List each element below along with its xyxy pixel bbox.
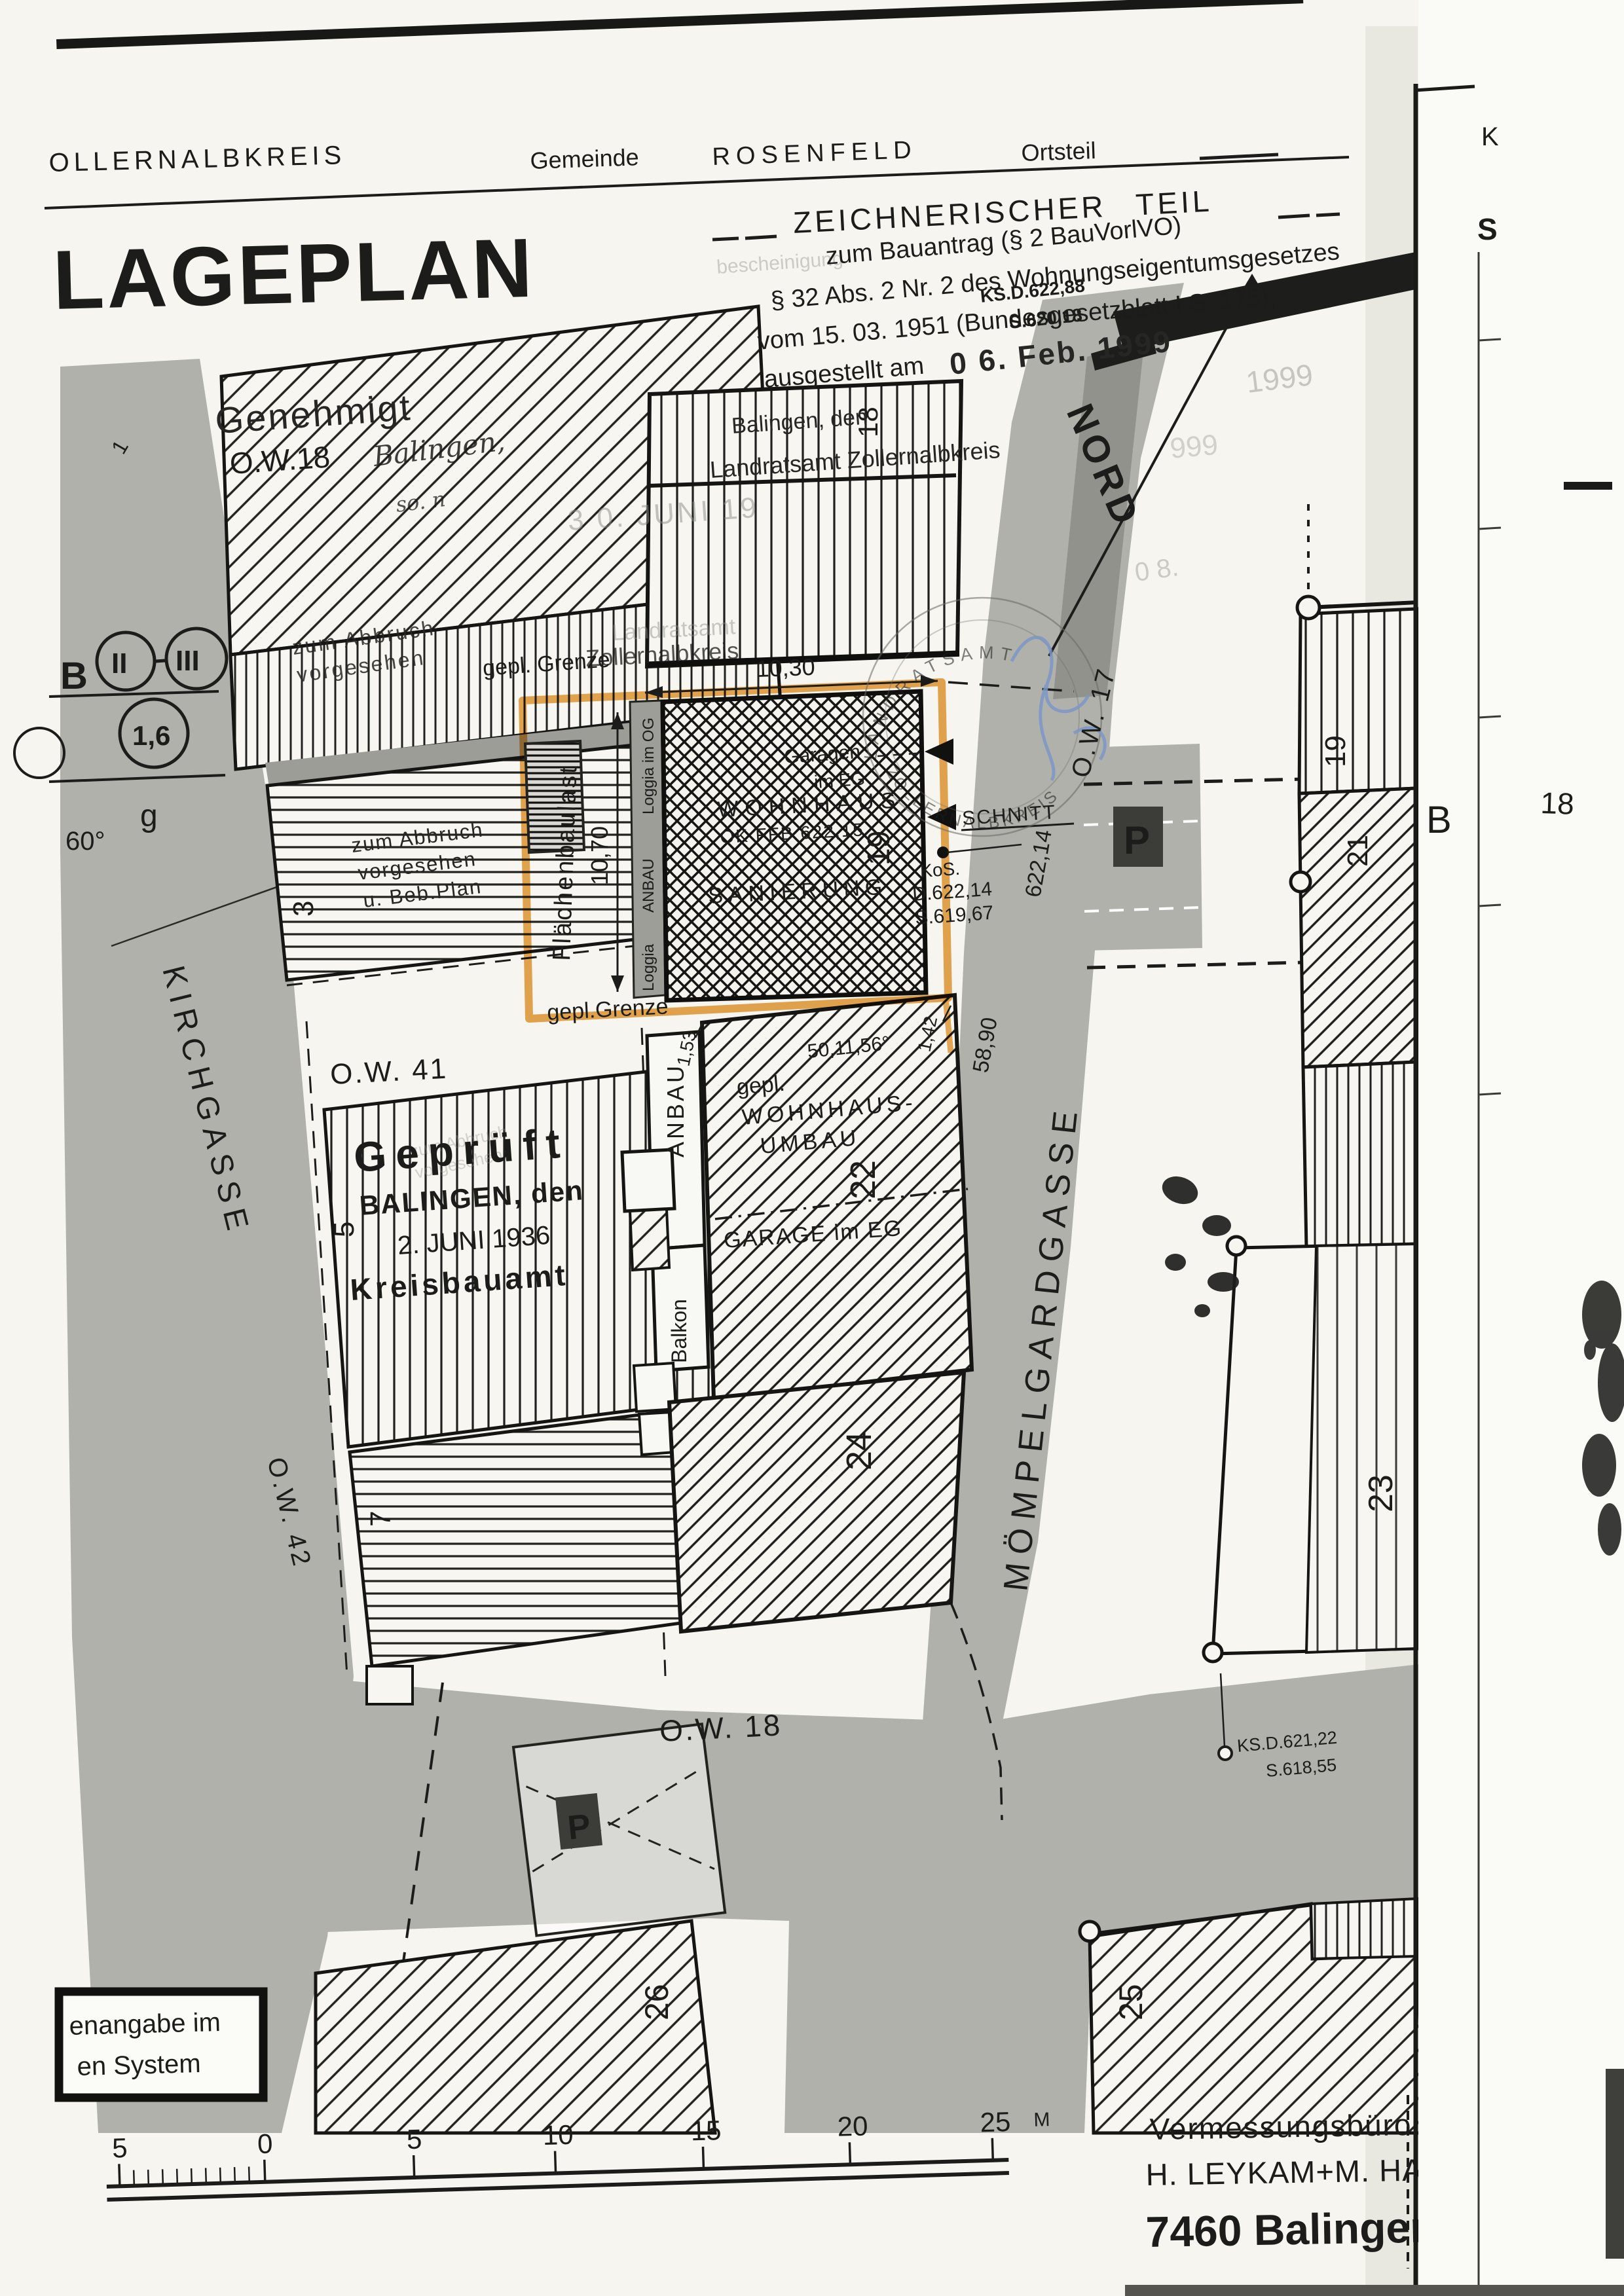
legend-floors-b: III bbox=[175, 645, 200, 677]
scale-tick-5: 5 bbox=[406, 2124, 422, 2155]
parking-p-lower: P bbox=[566, 1807, 593, 1847]
parcel-number-19-east: 19 bbox=[1319, 735, 1352, 767]
scale-tick-10: 10 bbox=[542, 2119, 574, 2151]
parcel-number-21: 21 bbox=[1342, 835, 1374, 867]
parcel-number-7: 7 bbox=[365, 1511, 397, 1527]
anbau-strip-label: ANBAU bbox=[640, 858, 657, 913]
wohnhaus-im-eg: im EG bbox=[813, 769, 866, 792]
scanned-lageplan-page: 18 bbox=[0, 0, 1624, 2296]
bottom-dark-bar bbox=[1125, 2285, 1624, 2296]
subtitle-dash-r2 bbox=[1316, 214, 1340, 215]
building-21 bbox=[1299, 788, 1417, 1067]
parcel-number-19-haus: 19 bbox=[862, 831, 896, 866]
gepl-label: gepl. bbox=[735, 1071, 786, 1100]
legend-b: B bbox=[60, 655, 88, 697]
parcel-number-24: 24 bbox=[840, 1431, 879, 1470]
ortsteil-label: Ortsteil bbox=[1021, 137, 1096, 166]
building-23-hatchpart bbox=[1306, 1244, 1417, 1652]
parcel-number-3: 3 bbox=[287, 901, 320, 917]
survey-point-4 bbox=[1204, 1643, 1222, 1662]
building-21b bbox=[1303, 1062, 1417, 1249]
stamp-ow18-top: O.W.18 bbox=[229, 439, 331, 481]
scale-tick-25: 25 bbox=[980, 2106, 1011, 2138]
firm-line-1: Vermessungsbüro bbox=[1149, 2107, 1412, 2146]
loggia-label: Loggia bbox=[640, 943, 657, 991]
side-letter-b: B bbox=[1426, 799, 1452, 841]
subtitle-dash-r1 bbox=[1278, 215, 1310, 217]
firm-line-3: 7460 Balingen bbox=[1145, 2202, 1437, 2256]
parking-p-upper: P bbox=[1124, 818, 1150, 862]
survey-point-5 bbox=[1080, 1922, 1099, 1941]
survey-point-2 bbox=[1291, 872, 1310, 892]
label-ow41: O.W. 41 bbox=[329, 1053, 449, 1091]
scale-tick-20: 20 bbox=[837, 2110, 868, 2141]
parking-lower bbox=[513, 1724, 725, 1935]
subtitle-dash-l1 bbox=[712, 238, 739, 240]
side-sheet-paper bbox=[1418, 0, 1624, 2296]
parcel-number-25: 25 bbox=[1113, 1984, 1149, 2020]
page-title: LAGEPLAN bbox=[52, 221, 536, 327]
survey-point-3 bbox=[1227, 1237, 1246, 1255]
loggia-og-label: Loggia im OG bbox=[640, 718, 657, 814]
side-letter-k: K bbox=[1481, 122, 1499, 151]
legend-angle: 60° bbox=[65, 827, 105, 856]
scale-tick-0: 0 bbox=[257, 2128, 273, 2159]
side-letter-s: S bbox=[1477, 212, 1498, 246]
kos-label: KoS. bbox=[919, 858, 961, 881]
side-bottom-streak bbox=[1606, 2069, 1624, 2259]
date-echo-3: 0 8. bbox=[1133, 553, 1180, 587]
scale-unit: M bbox=[1033, 2109, 1050, 2131]
scale-tick-15: 15 bbox=[690, 2115, 722, 2146]
note-line-1: enangabe im bbox=[69, 2008, 221, 2041]
building-24 bbox=[669, 1372, 964, 1631]
legend-bauweise: g bbox=[140, 799, 158, 833]
date-echo-2: 999 bbox=[1169, 429, 1219, 465]
side-sheet: K S B 18 bbox=[1414, 0, 1624, 2296]
balkon-box-hatched bbox=[630, 1209, 669, 1270]
balkon-label: Balkon bbox=[667, 1299, 691, 1363]
gemeinde-label: Gemeinde bbox=[530, 143, 639, 174]
building-19-east bbox=[1299, 609, 1417, 793]
legend-gfz: 1,6 bbox=[132, 720, 170, 751]
dim-10-70: 10,70 bbox=[586, 826, 613, 885]
label-ow18-street: O.W. 18 bbox=[659, 1707, 783, 1748]
dim-10-30: 10,30 bbox=[756, 653, 815, 682]
survey-point-1 bbox=[1297, 596, 1319, 619]
scale-tick-m5: 5 bbox=[111, 2132, 128, 2164]
footer-note-box: enangabe im en System bbox=[59, 1992, 263, 2098]
block-middle bbox=[669, 995, 972, 1631]
building-25-vertpart bbox=[1311, 1899, 1418, 1959]
parcel-number-23: 23 bbox=[1362, 1474, 1400, 1512]
ks-point bbox=[1219, 1747, 1232, 1760]
legend-floors-a: II bbox=[111, 647, 127, 680]
parcel-number-26: 26 bbox=[638, 1984, 675, 2020]
anbau-col-label: ANBAU bbox=[662, 1063, 689, 1157]
side-number-18: 18 bbox=[1540, 786, 1575, 821]
note-line-2: en System bbox=[77, 2049, 201, 2081]
annex-small bbox=[367, 1666, 413, 1704]
balkon-box-1 bbox=[622, 1150, 674, 1211]
parcel-number-5: 5 bbox=[328, 1222, 360, 1237]
parcel-number-22: 22 bbox=[843, 1160, 883, 1199]
subtitle-dash-l2 bbox=[745, 236, 777, 238]
